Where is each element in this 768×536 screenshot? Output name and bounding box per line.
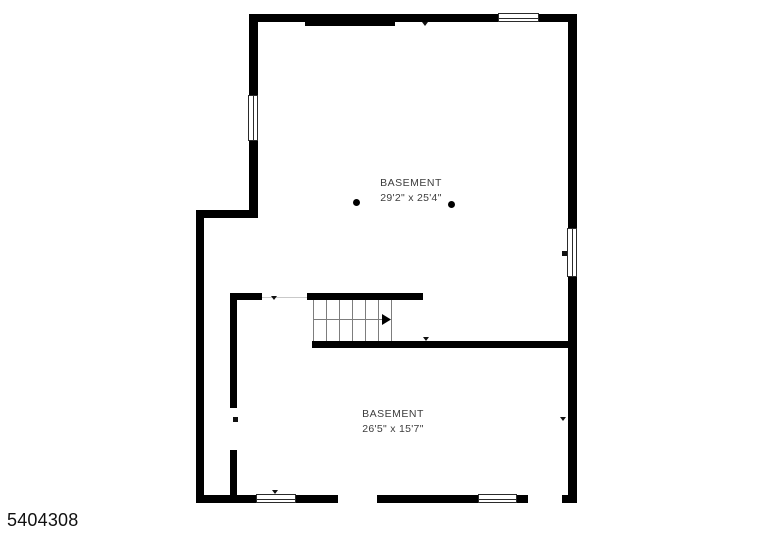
window-mid-line [257, 499, 295, 500]
wall [230, 293, 237, 408]
window-mid-line [479, 499, 516, 500]
room-label-lower: BASEMENT 26'5" x 15'7" [362, 408, 424, 436]
wall [562, 495, 576, 503]
wall [307, 293, 423, 300]
wall [196, 210, 258, 218]
support-column-icon [448, 201, 455, 208]
square-marker-icon [562, 251, 567, 256]
tick-marker-icon [422, 22, 428, 26]
tick-marker-icon [560, 417, 566, 421]
stair-tread [378, 300, 379, 341]
window-mid-line [572, 229, 573, 276]
window-mid-line [253, 96, 254, 140]
room-label-upper: BASEMENT 29'2" x 25'4" [380, 177, 442, 205]
window-icon [498, 13, 539, 22]
wall [312, 341, 572, 348]
stair-direction-line [313, 319, 382, 320]
window-mid-line [499, 18, 538, 19]
wall [230, 450, 237, 503]
window-icon [478, 494, 517, 503]
wall [196, 210, 204, 503]
stair-tread [365, 300, 366, 341]
square-marker-icon [233, 417, 238, 422]
room-dimensions: 26'5" x 15'7" [362, 423, 424, 436]
support-column-icon [353, 199, 360, 206]
window-icon [567, 228, 577, 277]
stair-direction-arrow-icon [382, 314, 391, 325]
tick-marker-icon [271, 296, 277, 300]
room-name: BASEMENT [380, 177, 442, 190]
room-dimensions: 29'2" x 25'4" [380, 192, 442, 205]
window-icon [256, 494, 296, 503]
listing-id: 5404308 [7, 510, 78, 531]
door-opening-line [262, 297, 307, 298]
room-name: BASEMENT [362, 408, 424, 421]
window-icon [248, 95, 258, 141]
stair-tread [326, 300, 327, 341]
floorplan-canvas: BASEMENT 29'2" x 25'4" BASEMENT 26'5" x … [0, 0, 768, 536]
stair-tread [339, 300, 340, 341]
wall [305, 14, 395, 26]
stair-tread [391, 300, 392, 341]
stair-tread [313, 300, 314, 341]
stair-tread [352, 300, 353, 341]
